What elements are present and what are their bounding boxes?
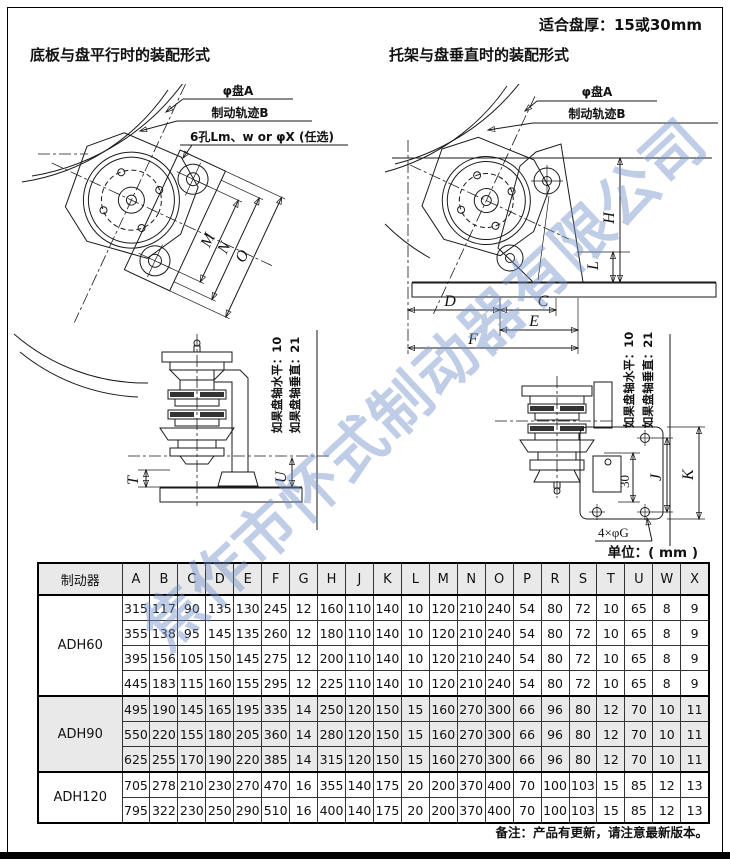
dim-cell: 9 [681,595,709,621]
caliper-body [51,119,211,276]
dim-cell: 355 [318,772,346,798]
dim-cell: 12 [597,696,625,722]
dim-cell: 65 [625,595,653,621]
dim-cell: 80 [541,595,569,621]
dim-cell: 70 [625,696,653,722]
dim-cell: 150 [373,747,401,773]
model-cell: ADH120 [38,772,122,823]
dim-cell: 625 [122,747,150,773]
dim-cell: 180 [206,722,234,747]
dim-cell: 278 [150,772,178,798]
dim-cell: 12 [597,722,625,747]
dim-cell: 54 [513,621,541,646]
dim-cell: 160 [429,722,457,747]
dim-cell: 11 [681,722,709,747]
dim-cell: 72 [569,621,597,646]
col-header: M [429,563,457,595]
dim-cell: 90 [178,595,206,621]
dim-cell: 200 [429,798,457,824]
dim-cell: 12 [290,671,318,697]
dim-cell: 270 [457,722,485,747]
dim-cell: 110 [346,671,374,697]
dim-cell: 15 [401,696,429,722]
dim-cell: 205 [234,722,262,747]
disc-thickness-note: 适合盘厚：15或30mm [539,14,702,35]
dim-cell: 13 [681,798,709,824]
dim-cell: 138 [150,621,178,646]
right-caliper-group [357,84,617,352]
dim-cell: 315 [122,595,150,621]
dim-cell: 175 [373,772,401,798]
dim-cell: 210 [457,595,485,621]
dim-label-30: 30 [617,475,632,488]
dim-cell: 70 [513,798,541,824]
brake-track-label: 制动轨迹B [211,105,268,120]
dim-cell: 12 [653,772,681,798]
dim-cell: 80 [541,621,569,646]
dim-cell: 13 [681,772,709,798]
disc-edge-arc [32,84,188,176]
col-header: A [122,563,150,595]
dim-cell: 120 [346,722,374,747]
dim-cell: 250 [206,798,234,824]
dim-cell: 10 [653,722,681,747]
dim-cell: 12 [597,747,625,773]
dim-cell: 96 [541,696,569,722]
dim-cell: 165 [206,696,234,722]
dim-cell: 9 [681,646,709,671]
dim-cell: 315 [318,747,346,773]
dim-cell: 260 [262,621,290,646]
dim-cell: 145 [206,621,234,646]
dim-cell: 120 [429,621,457,646]
dim-cell: 795 [122,798,150,824]
right-side-view: 30 J K 4×φG 如果盘轴水平：10 如果盘轴垂直：21 [495,332,705,546]
dim-cell: 70 [513,772,541,798]
dim-cell: 510 [262,798,290,824]
dim-cell: 120 [346,696,374,722]
dim-cell: 115 [178,671,206,697]
dim-cell: 220 [234,747,262,773]
dim-cell: 72 [569,595,597,621]
dim-label-o: O [232,247,252,265]
dim-cell: 96 [541,747,569,773]
dim-cell: 155 [234,671,262,697]
dim-cell: 270 [457,747,485,773]
dim-label-c: C [538,293,549,310]
dim-label-k: K [680,468,697,481]
dim-cell: 140 [346,772,374,798]
dim-label-t: T [125,475,142,485]
dim-cell: 255 [150,747,178,773]
right-assembly-view: D C E F H L φ盘A 制动轨迹B [357,84,718,354]
dim-cell: 135 [234,621,262,646]
dim-cell: 66 [513,722,541,747]
dim-cell: 160 [429,747,457,773]
dim-cell: 240 [485,595,513,621]
dim-cell: 135 [206,595,234,621]
disc-lower-arc2 [20,352,138,397]
dim-cell: 385 [262,747,290,773]
dim-cell: 245 [262,595,290,621]
dim-cell: 9 [681,621,709,646]
col-header: D [206,563,234,595]
dim-cell: 8 [653,646,681,671]
dim-cell: 11 [681,747,709,773]
disc-diameter-label: φ盘A [223,84,254,98]
dim-cell: 130 [234,595,262,621]
dim-label-d: D [443,293,456,310]
dim-cell: 10 [401,621,429,646]
dim-cell: 15 [401,747,429,773]
dim-cell: 140 [373,621,401,646]
dim-cell: 66 [513,747,541,773]
dim-cell: 120 [346,747,374,773]
dim-cell: 10 [401,646,429,671]
dim-cell: 20 [401,772,429,798]
dim-cell: 200 [318,646,346,671]
dim-cell: 270 [457,696,485,722]
dim-cell: 360 [262,722,290,747]
dim-cell: 10 [597,646,625,671]
dim-cell: 370 [457,772,485,798]
dim-cell: 96 [541,722,569,747]
dim-cell: 155 [178,722,206,747]
dim-cell: 175 [373,798,401,824]
dim-cell: 8 [653,671,681,697]
dim-cell: 160 [318,595,346,621]
dim-label-l: L [585,261,602,271]
dim-cell: 150 [373,696,401,722]
ground-hatch [412,283,716,297]
dim-cell: 400 [485,798,513,824]
dim-cell: 275 [262,646,290,671]
col-header: S [569,563,597,595]
unit-note: 单位：( mm ) [608,541,698,561]
dim-label-e: E [528,313,539,330]
dim-cell: 15 [597,798,625,824]
left-section-title: 底板与盘平行时的装配形式 [30,44,210,65]
col-header: L [401,563,429,595]
table-row: 7953222302502905101640014017520200370400… [38,798,709,824]
bolt-holes-label: 4×φG [598,525,629,540]
col-header: R [541,563,569,595]
dim-cell: 16 [290,798,318,824]
dim-cell: 120 [429,595,457,621]
dim-cell: 65 [625,646,653,671]
dim-cell: 110 [346,621,374,646]
dim-cell: 470 [262,772,290,798]
dim-cell: 14 [290,747,318,773]
left-side-view: T U 如果盘轴水平：10 如果盘轴垂直：21 [125,330,330,530]
disc-lower-arc [14,334,148,383]
dim-cell: 54 [513,646,541,671]
dim-cell: 190 [206,747,234,773]
dim-label-j: J [648,473,665,481]
col-header: K [373,563,401,595]
col-header: B [150,563,178,595]
dim-cell: 240 [485,621,513,646]
dim-cell: 80 [569,747,597,773]
footer-note: 备注：产品有更新，请注意最新版本。 [495,822,708,841]
dim-cell: 705 [122,772,150,798]
brake-track-label: 制动轨迹B [568,106,625,121]
dim-cell: 70 [625,747,653,773]
dim-cell: 12 [290,621,318,646]
col-header: E [234,563,262,595]
dim-cell: 145 [234,646,262,671]
dim-cell: 65 [625,671,653,697]
dim-cell: 110 [346,595,374,621]
table-row: 4451831151601552951222511014010120210240… [38,671,709,697]
dim-cell: 210 [178,772,206,798]
dim-cell: 12 [653,798,681,824]
table-row: 3951561051501452751220011014010120210240… [38,646,709,671]
dim-cell: 300 [485,722,513,747]
dim-cell: 190 [150,696,178,722]
dim-cell: 8 [653,621,681,646]
col-header: F [262,563,290,595]
dim-cell: 300 [485,747,513,773]
dim-cell: 140 [373,595,401,621]
dim-cell: 300 [485,696,513,722]
dim-cell: 65 [625,621,653,646]
dim-cell: 10 [597,595,625,621]
table-row: ADH6031511790135130245121601101401012021… [38,595,709,621]
dim-cell: 400 [318,798,346,824]
dim-cell: 370 [457,798,485,824]
dim-cell: 120 [429,646,457,671]
dim-cell: 210 [457,671,485,697]
dim-cell: 14 [290,722,318,747]
dim-cell: 72 [569,671,597,697]
model-cell: ADH90 [38,696,122,772]
dimension-table: 制动器ABCDEFGHJKLMNOPRSTUWXADH6031511790135… [37,562,710,824]
dim-cell: 140 [373,671,401,697]
dim-cell: 230 [206,772,234,798]
col-header: N [457,563,485,595]
dim-label-u: U [273,470,290,483]
bolt-holes-label: 6孔Lm、w or φX (任选) [190,129,334,144]
dim-cell: 12 [290,646,318,671]
table-row: 6252551701902203851431512015015160270300… [38,747,709,773]
dim-cell: 110 [346,646,374,671]
dim-cell: 14 [290,696,318,722]
dim-cell: 95 [178,621,206,646]
axis-note-line1: 如果盘轴水平：10 [622,332,636,429]
dim-cell: 170 [178,747,206,773]
dim-cell: 400 [485,772,513,798]
col-header: O [485,563,513,595]
dim-cell: 10 [597,621,625,646]
dim-cell: 240 [485,671,513,697]
col-header-model: 制动器 [38,563,122,595]
dim-cell: 100 [541,798,569,824]
dim-label-f: F [467,331,478,348]
col-header: X [681,563,709,595]
dim-cell: 15 [597,772,625,798]
dim-cell: 54 [513,595,541,621]
dim-cell: 85 [625,798,653,824]
dim-cell: 85 [625,772,653,798]
dim-cell: 200 [429,772,457,798]
dim-label-h: H [601,211,618,225]
dim-cell: 160 [206,671,234,697]
dim-cell: 70 [625,722,653,747]
dim-cell: 210 [457,621,485,646]
dim-cell: 290 [234,798,262,824]
dim-cell: 240 [485,646,513,671]
dim-cell: 445 [122,671,150,697]
dim-cell: 10 [653,696,681,722]
ground-hatch [160,488,302,502]
axis-note-line2: 如果盘轴垂直：21 [641,332,655,429]
col-header: W [653,563,681,595]
table-row: ADH9049519014516519533514250120150151602… [38,696,709,722]
dim-cell: 195 [234,696,262,722]
dim-cell: 10 [653,747,681,773]
disc-diameter-label: φ盘A [582,84,613,99]
catalog-page: 适合盘厚：15或30mm 底板与盘平行时的装配形式 托架与盘垂直时的装配形式 [0,0,730,862]
dim-cell: 15 [401,722,429,747]
col-header: H [318,563,346,595]
dim-cell: 395 [122,646,150,671]
dim-cell: 12 [290,595,318,621]
axis-note-line2: 如果盘轴垂直：21 [288,337,302,434]
dim-cell: 80 [569,722,597,747]
dim-cell: 66 [513,696,541,722]
col-header: G [290,563,318,595]
dim-cell: 80 [541,671,569,697]
dim-cell: 117 [150,595,178,621]
dim-cell: 20 [401,798,429,824]
dim-cell: 225 [318,671,346,697]
col-header: J [346,563,374,595]
dim-cell: 80 [541,646,569,671]
dim-cell: 54 [513,671,541,697]
dim-cell: 180 [318,621,346,646]
axis-note-line1: 如果盘轴水平：10 [270,337,284,434]
dim-cell: 140 [346,798,374,824]
dim-cell: 16 [290,772,318,798]
dim-cell: 280 [318,722,346,747]
bottom-bar [0,852,730,859]
dim-cell: 150 [373,722,401,747]
col-header: C [178,563,206,595]
dim-cell: 210 [457,646,485,671]
dim-cell: 160 [429,696,457,722]
dim-cell: 322 [150,798,178,824]
dim-cell: 270 [234,772,262,798]
dim-cell: 250 [318,696,346,722]
col-header: P [513,563,541,595]
table-row: ADH1207052782102302704701635514017520200… [38,772,709,798]
dim-cell: 80 [569,696,597,722]
dim-cell: 355 [122,621,150,646]
table-row: 5502201551802053601428012015015160270300… [38,722,709,747]
dim-cell: 550 [122,722,150,747]
dim-cell: 145 [178,696,206,722]
dim-cell: 103 [569,772,597,798]
dim-cell: 156 [150,646,178,671]
technical-drawings: M N O φ盘A 制动轨迹B 6孔Lm、w or φX (任选) [0,84,730,564]
dim-cell: 11 [681,696,709,722]
dim-cell: 100 [541,772,569,798]
dim-cell: 72 [569,646,597,671]
right-section-title: 托架与盘垂直时的装配形式 [389,44,569,65]
col-header: U [625,563,653,595]
dim-cell: 10 [597,671,625,697]
col-header: T [597,563,625,595]
model-cell: ADH60 [38,595,122,696]
dim-label-n: N [214,238,235,257]
dim-cell: 9 [681,671,709,697]
dim-cell: 10 [401,595,429,621]
dim-cell: 8 [653,595,681,621]
dim-cell: 220 [150,722,178,747]
dim-cell: 295 [262,671,290,697]
dim-cell: 10 [401,671,429,697]
dim-cell: 120 [429,671,457,697]
dim-cell: 150 [206,646,234,671]
dim-cell: 230 [178,798,206,824]
dim-cell: 183 [150,671,178,697]
dim-cell: 103 [569,798,597,824]
dim-cell: 105 [178,646,206,671]
dim-cell: 495 [122,696,150,722]
dim-cell: 335 [262,696,290,722]
dim-cell: 140 [373,646,401,671]
table-row: 3551389514513526012180110140101202102405… [38,621,709,646]
